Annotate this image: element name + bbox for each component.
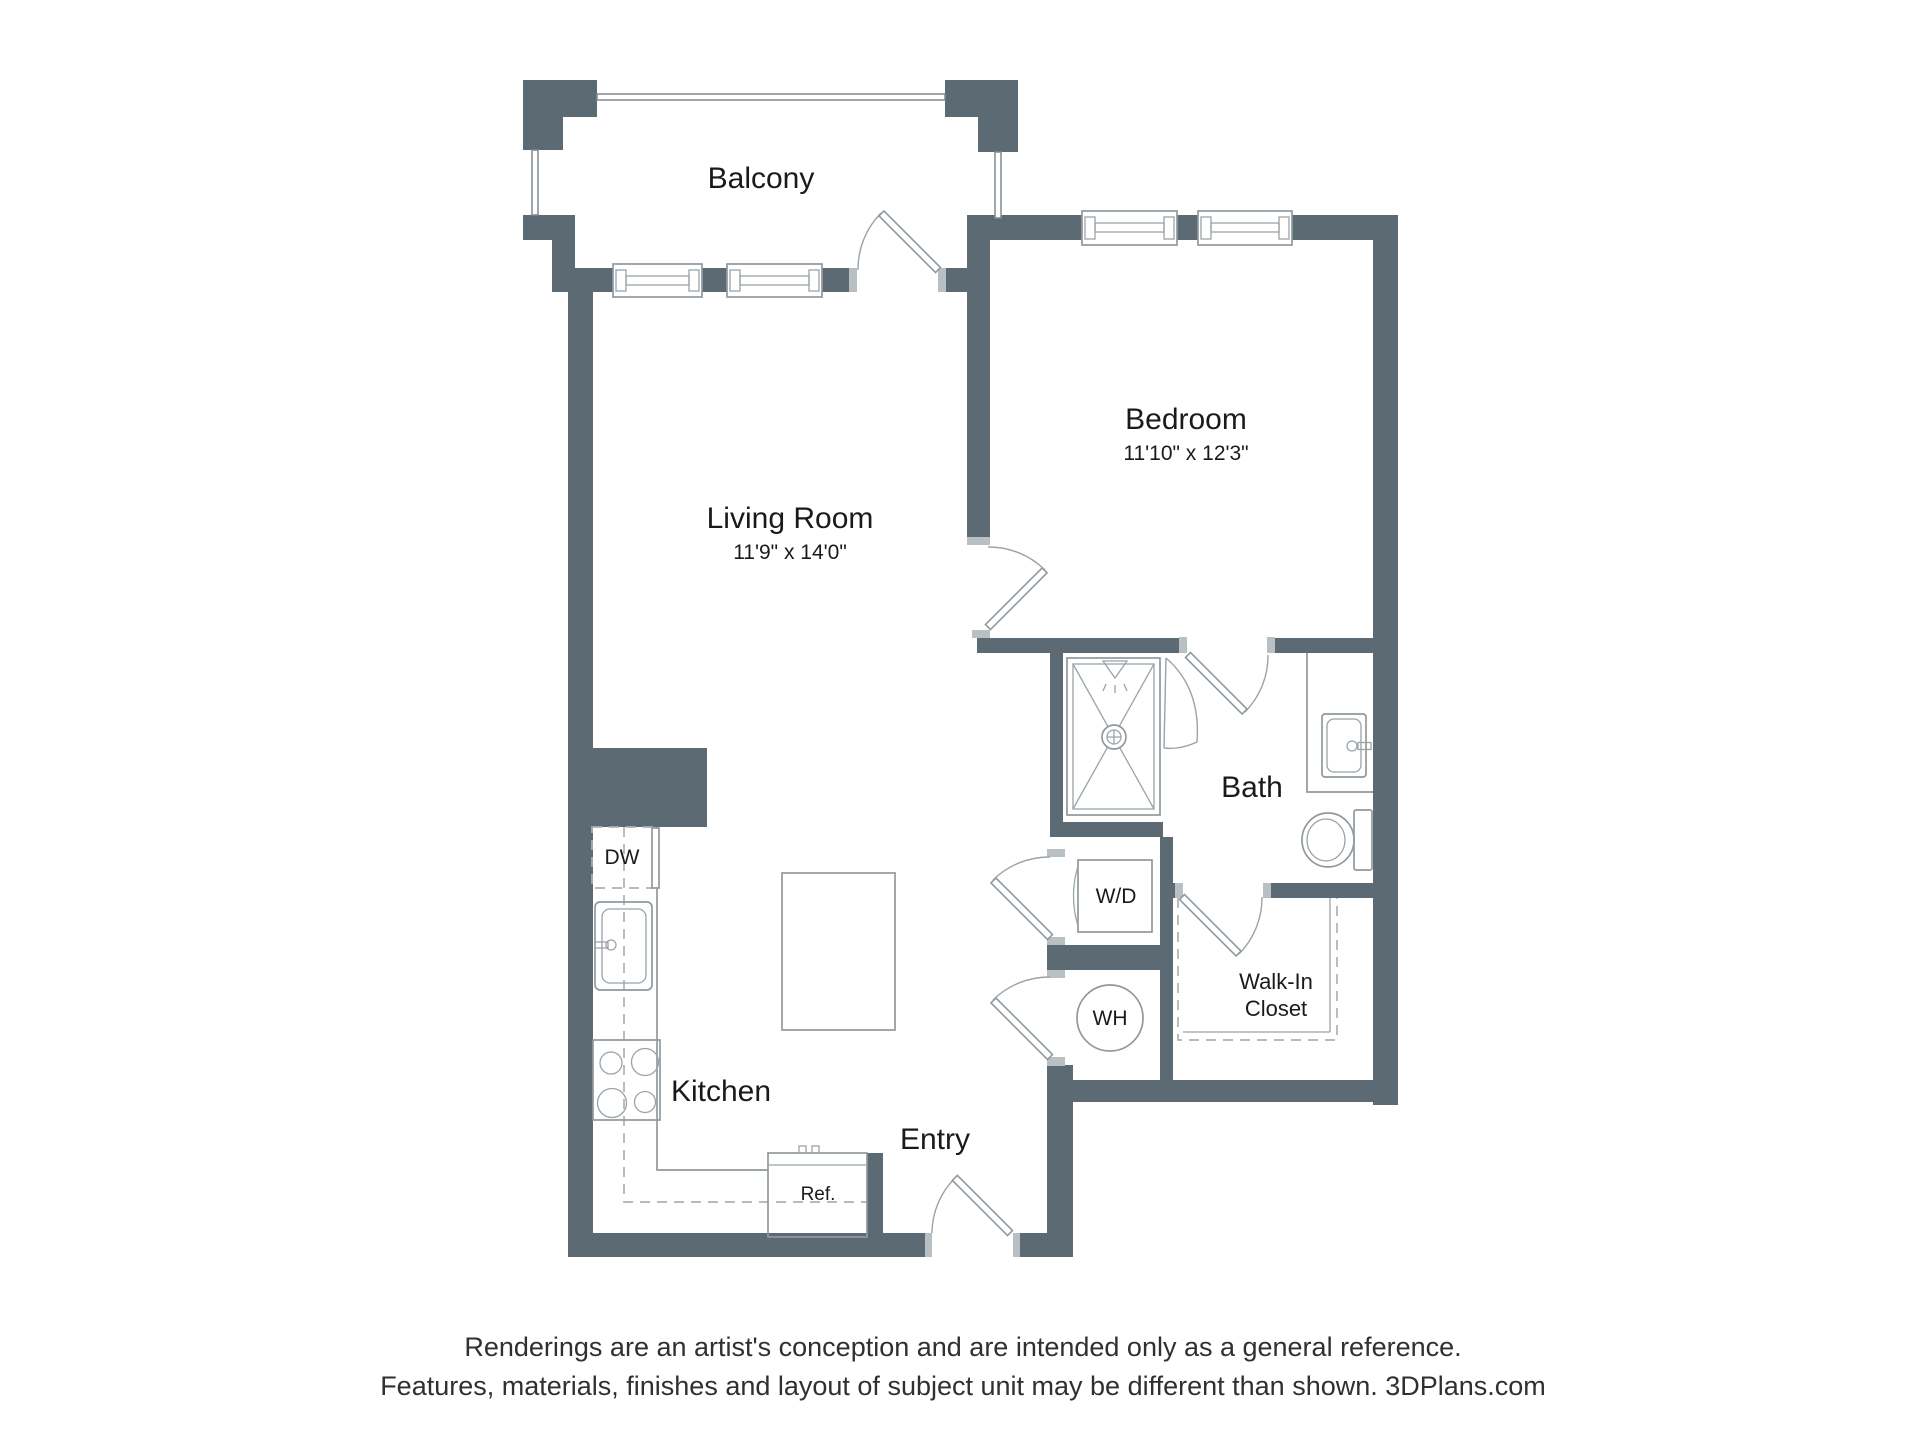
kitchen-label: Kitchen <box>671 1075 771 1108</box>
jamb <box>925 1233 932 1257</box>
jamb <box>1263 883 1271 898</box>
shower-left-wall <box>1050 653 1063 822</box>
closet-door <box>1180 895 1262 957</box>
jamb <box>1267 637 1275 653</box>
right-exterior-wall <box>1373 215 1398 1105</box>
shower-bottom-wall <box>1050 822 1163 837</box>
dishwasher-label: DW <box>605 846 640 869</box>
living-room-window-2 <box>727 264 822 297</box>
balcony-rail-right <box>995 152 1001 218</box>
jamb <box>1175 883 1183 898</box>
disclaimer: Renderings are an artist's conception an… <box>380 1332 1546 1401</box>
entry-right-wall <box>1047 1065 1073 1257</box>
refrigerator-side-wall <box>867 1153 883 1237</box>
balcony-pillar-top-left-leg <box>523 117 563 150</box>
jamb <box>1179 637 1187 653</box>
living-room-dimensions: 11'9" x 14'0" <box>733 541 847 564</box>
washer-dryer-label: W/D <box>1096 885 1137 908</box>
balcony-rail-top <box>597 94 945 100</box>
living-room-label: Living Room <box>707 502 874 535</box>
bedroom-top-wall-seg1 <box>967 215 1082 240</box>
jamb <box>1013 1233 1020 1257</box>
living-top-wall-seg1 <box>568 268 618 292</box>
floor-plan-page: Balcony Living Room 11'9" x 14'0" Bedroo… <box>0 0 1920 1440</box>
balcony-pillar-top-right-leg <box>978 117 1018 152</box>
bedroom-top-wall-pier <box>1177 215 1198 240</box>
water-heater-label: WH <box>1093 1007 1128 1030</box>
jamb <box>967 537 990 545</box>
balcony-door <box>858 211 940 273</box>
wd-wh-divider-wall <box>1047 945 1173 970</box>
walk-in-closet-label-line2: Closet <box>1245 996 1307 1021</box>
entry-label: Entry <box>900 1123 970 1156</box>
walk-in-closet-label-line1: Walk-In <box>1239 969 1313 994</box>
balcony-pillar-top-right <box>945 80 1018 117</box>
balcony-rail-left <box>532 150 538 215</box>
balcony-railings <box>532 94 1001 218</box>
bedroom-label: Bedroom <box>1125 403 1247 436</box>
bedroom-dimensions: 11'10" x 12'3" <box>1123 442 1248 465</box>
refrigerator-label: Ref. <box>801 1184 836 1205</box>
left-exterior-wall <box>568 268 593 1257</box>
toilet <box>1302 810 1372 870</box>
jamb <box>1047 849 1065 857</box>
balcony-pillar-top-left <box>523 80 597 117</box>
kitchen-wall-block <box>592 748 707 827</box>
floor-plan-drawing: Balcony Living Room 11'9" x 14'0" Bedroo… <box>0 0 1920 1440</box>
disclaimer-line1: Renderings are an artist's conception an… <box>464 1332 1461 1362</box>
shower <box>1067 658 1160 815</box>
closet-bottom-wall <box>1047 1080 1398 1102</box>
bath-door <box>1186 653 1268 715</box>
bedroom-window-2 <box>1198 211 1292 245</box>
bath-vanity-sink <box>1307 653 1373 792</box>
stove <box>593 1040 660 1120</box>
closet-top-wall <box>1263 883 1398 898</box>
faucet-icon <box>1347 741 1357 751</box>
bath-label: Bath <box>1221 771 1283 804</box>
bedroom-window-1 <box>1082 211 1177 245</box>
washer-dryer-door <box>991 857 1053 939</box>
bath-top-wall-right <box>1267 638 1398 653</box>
bedroom-door <box>986 547 1048 629</box>
shower-door <box>1164 658 1197 748</box>
kitchen-counter <box>624 827 867 1202</box>
living-room-window-1 <box>613 264 702 297</box>
water-heater-door <box>991 977 1053 1059</box>
jamb <box>849 268 857 292</box>
balcony-label: Balcony <box>708 162 815 195</box>
disclaimer-line2: Features, materials, finishes and layout… <box>380 1371 1546 1401</box>
living-bedroom-divider-wall <box>967 215 990 545</box>
fixtures <box>592 653 1373 1237</box>
kitchen-island <box>782 873 895 1030</box>
balcony-pillar-bottom-left <box>523 215 575 240</box>
labels: Balcony Living Room 11'9" x 14'0" Bedroo… <box>605 162 1313 1205</box>
jamb <box>972 630 990 638</box>
jamb <box>938 268 946 292</box>
bath-top-wall-left <box>977 638 1187 653</box>
bottom-exterior-wall-right <box>1013 1233 1073 1257</box>
entry-door <box>932 1175 1012 1235</box>
